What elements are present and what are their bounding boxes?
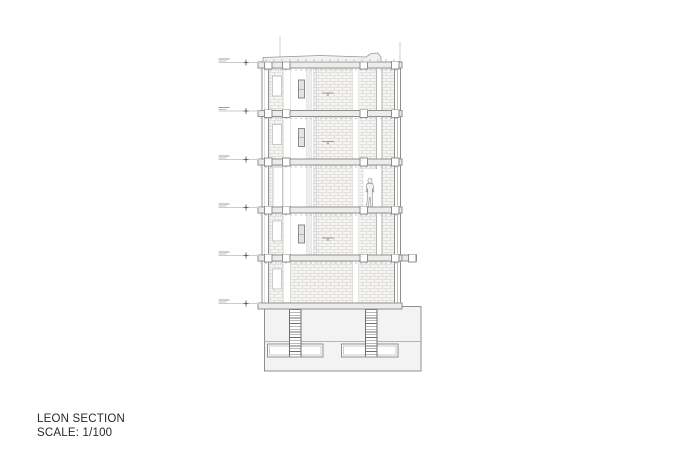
- level-marker-dot: [245, 110, 247, 112]
- level-marker-label: [219, 252, 230, 253]
- drawing-scale: SCALE: 1/100: [37, 426, 125, 440]
- brick-wall: [313, 213, 353, 255]
- foundation-block: [265, 307, 422, 372]
- drawing-canvas: LEON SECTION SCALE: 1/100: [0, 0, 700, 453]
- brick-wall: [313, 68, 353, 111]
- level-marker-dot: [245, 207, 247, 209]
- title-block: LEON SECTION SCALE: 1/100: [37, 412, 125, 440]
- brick-wall: [313, 165, 353, 207]
- column-cap: [265, 254, 273, 262]
- wall-gap: [353, 261, 359, 303]
- column-cap: [392, 206, 400, 214]
- interior-column: [377, 117, 383, 160]
- floor-slab: [258, 111, 402, 117]
- floor-slab: [258, 159, 402, 165]
- column-cap: [360, 206, 368, 214]
- drawing-title: LEON SECTION: [37, 412, 125, 426]
- column-cap: [392, 254, 400, 262]
- level-marker-label: [219, 61, 227, 62]
- brick-wall: [313, 117, 353, 160]
- column-cap: [360, 158, 368, 166]
- brick-wall: [382, 117, 395, 160]
- column-cap: [283, 254, 291, 262]
- level-marker-dot: [245, 159, 247, 161]
- brick-wall: [382, 165, 395, 207]
- window-opening: [273, 76, 282, 96]
- brick-wall: [290, 261, 353, 303]
- brick-wall: [359, 213, 377, 255]
- column-cap: [265, 110, 273, 118]
- level-marker-label: [219, 300, 230, 301]
- column-cap: [283, 110, 291, 118]
- door-opening: [273, 167, 283, 207]
- level-marker-dot: [245, 255, 247, 257]
- window-opening: [273, 221, 282, 241]
- column-left: [262, 62, 269, 303]
- floor-slab: [258, 207, 402, 213]
- partition: [307, 213, 312, 255]
- partition: [307, 165, 312, 207]
- brick-wall: [359, 261, 395, 303]
- brick-wall: [382, 213, 395, 255]
- column-cap: [360, 254, 368, 262]
- level-marker-label: [219, 204, 230, 205]
- partition: [307, 68, 312, 111]
- interior-column: [377, 213, 383, 255]
- partition: [307, 117, 312, 160]
- column-cap: [392, 158, 400, 166]
- level-marker-dot: [245, 62, 247, 64]
- window-opening: [273, 269, 282, 289]
- level-marker-label: [219, 302, 227, 303]
- column-cap: [392, 61, 400, 69]
- column-cap: [409, 254, 417, 262]
- brick-wall: [382, 68, 395, 111]
- level-marker-label: [219, 59, 230, 60]
- level-marker-dot: [245, 303, 247, 305]
- column-cap: [265, 206, 273, 214]
- brick-wall: [359, 117, 377, 160]
- wall-gap: [284, 117, 291, 160]
- level-marker-label: [219, 156, 230, 157]
- column-cap: [360, 110, 368, 118]
- floor-slab: [258, 62, 402, 68]
- floor-slab: [258, 303, 402, 309]
- wall-gap: [284, 68, 291, 111]
- column-cap: [283, 206, 291, 214]
- level-marker-label: [219, 206, 227, 207]
- wall-gap: [284, 261, 291, 303]
- floor-slab: [258, 255, 402, 261]
- column-cap: [392, 110, 400, 118]
- level-marker-label: [219, 107, 230, 108]
- interior-column: [377, 68, 383, 111]
- wall-gap: [284, 213, 291, 255]
- window-opening: [273, 125, 282, 145]
- level-marker-label: [219, 158, 227, 159]
- wall-gap: [284, 165, 291, 207]
- brick-wall: [359, 68, 377, 111]
- column-cap: [265, 158, 273, 166]
- level-marker-label: [219, 109, 227, 110]
- column-cap: [283, 158, 291, 166]
- section-drawing: [0, 0, 700, 453]
- level-marker-label: [219, 254, 227, 255]
- figure-head: [368, 178, 372, 183]
